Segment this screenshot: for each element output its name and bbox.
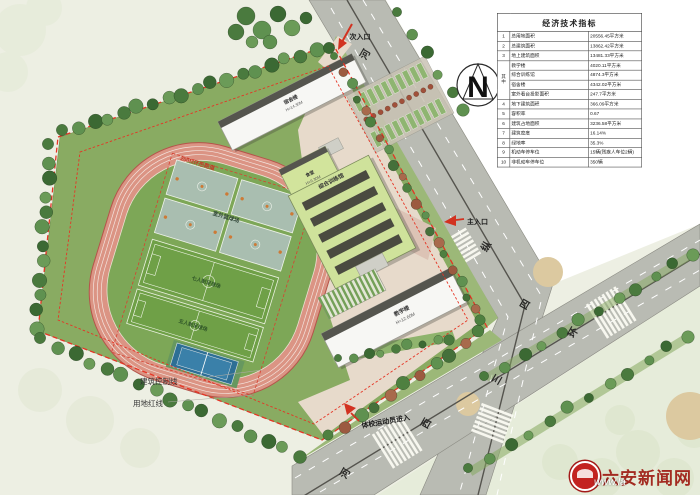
- tree: [246, 36, 258, 48]
- tree: [238, 68, 249, 79]
- indicators-grid: 经济技术指标 1总用地面积20556.45平方米2总建筑面积13862.42平方…: [497, 13, 642, 167]
- control-line-label: 建筑控制线: [140, 376, 178, 386]
- tree: [584, 393, 593, 402]
- tree: [219, 73, 234, 88]
- tree: [440, 250, 447, 257]
- tree: [403, 184, 412, 193]
- tree: [463, 463, 472, 472]
- tree: [244, 430, 257, 443]
- indicator-no: 3: [497, 51, 510, 61]
- indicator-no: 5: [497, 109, 510, 119]
- tree: [284, 20, 300, 36]
- tree: [182, 400, 193, 411]
- indicator-row: 宿舍楼4342.02平方米: [497, 80, 641, 90]
- indicator-val: 4874.3平方米: [589, 70, 642, 80]
- redline-label: 用地红线: [133, 398, 163, 408]
- tree: [471, 304, 480, 313]
- secondary-entrance-label: 次入口: [350, 32, 371, 41]
- tree: [88, 114, 103, 129]
- tree: [276, 441, 287, 452]
- canopy-blob: [18, 368, 62, 412]
- tree: [614, 293, 625, 304]
- tree: [42, 171, 57, 186]
- tree: [519, 348, 532, 361]
- tree: [479, 371, 488, 380]
- indicator-name: 容积率: [510, 109, 589, 119]
- tree: [457, 104, 470, 117]
- indicator-name: 绿地率: [510, 138, 589, 148]
- tree: [431, 357, 443, 369]
- tree: [447, 87, 458, 98]
- tree: [265, 58, 280, 73]
- tree: [42, 157, 55, 170]
- indicator-name: 机动车停车位: [510, 148, 589, 158]
- tree: [376, 135, 383, 142]
- tree: [392, 345, 401, 354]
- tree: [442, 349, 456, 363]
- indicator-val: 35.3%: [589, 138, 642, 148]
- tree: [294, 50, 307, 63]
- indicator-row: 6建筑占地面积3236.58平方米: [497, 119, 641, 129]
- tree: [330, 52, 337, 59]
- tree: [347, 78, 358, 89]
- indicators-table: 经济技术指标 1总用地面积20556.45平方米2总建筑面积13862.42平方…: [497, 13, 700, 260]
- tree: [652, 272, 661, 281]
- tree: [385, 389, 397, 401]
- indicator-name: 地上建筑面积: [510, 51, 589, 61]
- tree: [365, 117, 376, 128]
- indicator-val: 366.09平方米: [589, 99, 642, 109]
- corner-apron: [533, 257, 563, 287]
- tree: [192, 83, 203, 94]
- tree: [537, 342, 546, 351]
- indicator-val: 3236.58平方米: [589, 119, 642, 129]
- indicator-no: 2: [497, 41, 510, 51]
- canopy-blob: [605, 405, 635, 435]
- indicator-row: 其中教学楼4020.11平方米: [497, 61, 641, 71]
- indicator-val: 4020.11平方米: [589, 61, 642, 71]
- tree: [362, 106, 371, 115]
- indicator-no: 8: [497, 138, 510, 148]
- canopy-blob: [120, 428, 160, 468]
- indicator-name: 总用地面积: [510, 31, 589, 41]
- tree: [364, 348, 375, 359]
- tree: [505, 438, 518, 451]
- indicator-name: 综合训练馆: [510, 70, 589, 80]
- tree: [228, 24, 244, 40]
- watermark-url: www.la: [594, 477, 626, 488]
- tree: [212, 414, 227, 429]
- indicator-row: 5容积率0.67: [497, 109, 641, 119]
- tree: [69, 346, 84, 361]
- indicator-no: 7: [497, 128, 510, 138]
- indicator-name: 地下建筑面积: [510, 99, 589, 109]
- indicator-name: 非机动车停车位: [510, 157, 589, 167]
- watermark: 六安新闻网 www.la: [560, 458, 700, 494]
- tree: [147, 99, 158, 110]
- tree: [249, 65, 262, 78]
- indicator-row: 7建筑密度16.14%: [497, 128, 641, 138]
- tree: [557, 327, 568, 338]
- indicator-no: 4: [497, 99, 510, 109]
- indicators-body: 1总用地面积20556.45平方米2总建筑面积13862.42平方米3地上建筑面…: [497, 31, 641, 167]
- indicator-row: 1总用地面积20556.45平方米: [497, 31, 641, 41]
- north-letter: N: [467, 71, 489, 104]
- indicator-name: 总建筑面积: [510, 41, 589, 51]
- indicator-name: 宿舍楼: [510, 80, 589, 90]
- indicator-row: 综合训练馆4874.3平方米: [497, 70, 641, 80]
- tree: [349, 354, 358, 363]
- tree: [129, 99, 144, 114]
- tree: [339, 68, 348, 77]
- tree: [661, 341, 672, 352]
- tree: [56, 124, 67, 135]
- indicators-title: 经济技术指标: [497, 13, 641, 31]
- indicator-row: 3地上建筑面积13481.33平方米: [497, 51, 641, 61]
- tree: [385, 145, 394, 154]
- tree: [278, 53, 289, 64]
- indicators-title-row: 经济技术指标: [497, 13, 641, 31]
- tree: [195, 404, 208, 417]
- tree: [594, 307, 603, 316]
- tree: [422, 212, 429, 219]
- indicator-row: 室外看台投影面积247.7平方米: [497, 90, 641, 100]
- indicator-row: 8绿地率35.3%: [497, 138, 641, 148]
- tree: [388, 160, 399, 171]
- tree: [34, 332, 45, 343]
- tree: [392, 7, 401, 16]
- indicator-no: 10: [497, 157, 510, 167]
- tree: [353, 96, 360, 103]
- indicator-val: 15辆(残疾人车位2辆): [589, 148, 642, 158]
- tree: [415, 370, 425, 380]
- indicator-val: 13481.33平方米: [589, 51, 642, 61]
- tree: [118, 106, 131, 119]
- tree: [499, 362, 510, 373]
- tree: [629, 284, 642, 297]
- tree: [334, 354, 341, 361]
- tree: [270, 6, 286, 22]
- tree: [35, 289, 46, 300]
- indicator-row: 4地下建筑面积366.09平方米: [497, 99, 641, 109]
- indicator-name: 建筑占地面积: [510, 119, 589, 129]
- indicator-no: 6: [497, 119, 510, 129]
- tree: [113, 367, 128, 382]
- tree: [163, 393, 178, 408]
- tree: [561, 401, 574, 414]
- indicator-row: 9机动车停车位15辆(残疾人车位2辆): [497, 148, 641, 158]
- tree: [461, 338, 471, 348]
- indicator-name: 室外看台投影面积: [510, 90, 589, 100]
- indicator-val: 20556.45平方米: [589, 31, 642, 41]
- tree: [294, 451, 307, 464]
- tree: [484, 453, 495, 464]
- tree: [682, 331, 695, 344]
- tree: [37, 241, 48, 252]
- tree: [35, 219, 50, 234]
- indicator-name: 建筑密度: [510, 128, 589, 138]
- tree: [411, 199, 422, 210]
- tree: [434, 335, 443, 344]
- tree: [545, 416, 556, 427]
- tree: [457, 276, 468, 287]
- tree: [425, 227, 434, 236]
- tree: [402, 339, 413, 350]
- tree: [433, 70, 442, 79]
- canopy-blob: [66, 396, 114, 444]
- indicator-no: 9: [497, 148, 510, 158]
- tree: [434, 238, 445, 249]
- tree: [463, 294, 470, 301]
- tree: [572, 313, 585, 326]
- tree: [237, 7, 255, 25]
- tree: [475, 315, 486, 326]
- tree: [605, 378, 616, 389]
- indicator-row: 2总建筑面积13862.42平方米: [497, 41, 641, 51]
- tree: [396, 376, 410, 390]
- tree: [42, 138, 53, 149]
- tree: [300, 12, 312, 24]
- tree: [263, 35, 277, 49]
- indicator-val: 13862.42平方米: [589, 41, 642, 51]
- tree: [101, 363, 114, 376]
- tree: [102, 114, 113, 125]
- tree: [323, 42, 334, 53]
- tree: [52, 342, 65, 355]
- tree: [448, 266, 457, 275]
- tree: [407, 29, 418, 40]
- indicator-val: 0.67: [589, 109, 642, 119]
- indicator-val: 247.7平方米: [589, 90, 642, 100]
- tree: [262, 434, 277, 449]
- tree: [84, 358, 95, 369]
- tree: [203, 76, 216, 89]
- tree: [30, 303, 43, 316]
- tree: [174, 89, 189, 104]
- indicator-name: 教学楼: [510, 61, 589, 71]
- indicator-no: 1: [497, 31, 510, 41]
- tree: [323, 430, 333, 440]
- tree: [419, 341, 426, 348]
- tree: [444, 335, 455, 346]
- tree: [399, 173, 406, 180]
- tree: [645, 356, 654, 365]
- indicator-no: 其中: [497, 61, 510, 100]
- tree: [232, 420, 243, 431]
- tree: [37, 254, 50, 267]
- tree: [40, 192, 51, 203]
- tree: [369, 403, 379, 413]
- tree: [472, 325, 484, 337]
- tree: [421, 46, 434, 59]
- tree: [72, 122, 85, 135]
- north-arrow: N: [457, 64, 499, 106]
- tree: [621, 368, 634, 381]
- main-entrance-arrow: [456, 219, 464, 220]
- site-plan-page: 200M环形跑道 室外篮球场 七人制足球场 五人制足球场 宿舍楼 H=14.30…: [0, 0, 700, 495]
- indicator-val: 16.14%: [589, 128, 642, 138]
- indicator-row: 10非机动车停车位350辆: [497, 157, 641, 167]
- tree: [40, 206, 53, 219]
- indicator-val: 350辆: [589, 157, 642, 167]
- tree: [310, 43, 325, 58]
- tree: [339, 422, 351, 434]
- tree: [377, 350, 384, 357]
- main-entrance-label: 主入口: [467, 217, 488, 226]
- indicator-val: 4342.02平方米: [589, 80, 642, 90]
- tree: [32, 273, 47, 288]
- tree: [524, 431, 533, 440]
